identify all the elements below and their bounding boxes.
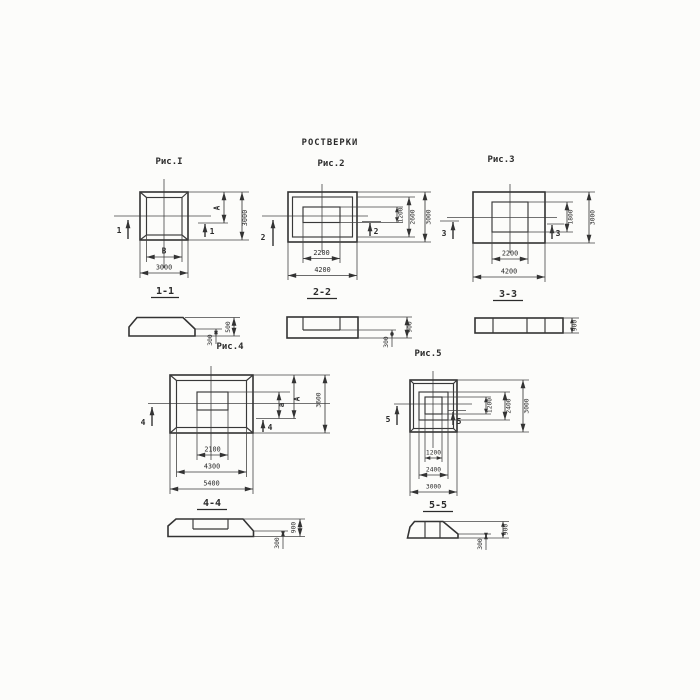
fig5-cut-label: 5 [457, 417, 462, 426]
fig1-dim-inner-height: A [213, 205, 222, 210]
section-5-5-height-total: 900 [503, 524, 510, 536]
fig4-recess-contour [197, 392, 228, 410]
fig2-cut-mark-left: 2 [261, 220, 273, 246]
section-2-2-title: 2-2 [313, 287, 331, 298]
fig3: Рис.3 3 3 1800 3000 2200 420 [440, 155, 597, 282]
fig4-dim-w1: 2100 [204, 446, 220, 454]
section-4-4-dimensions: 900 300 [243, 519, 305, 549]
section-5-5-height-edge: 300 [477, 538, 484, 550]
fig5-outer-contour [410, 380, 457, 432]
section-2-2-view: 2-2 300 900 [287, 287, 414, 348]
fig5-centerlines [394, 371, 472, 448]
fig2: Рис.2 2 2 1200 2600 3000 2200 [261, 159, 433, 280]
fig5-dim-h3: 3000 [524, 398, 531, 413]
fig2-dim-h3: 3000 [426, 209, 433, 224]
fig4-dim-w3: 5400 [203, 480, 219, 488]
fig5-dim-w3: 3000 [426, 484, 441, 491]
fig4-cut-mark-left: 4 [141, 407, 152, 427]
fig3-cut-mark-left: 3 [440, 221, 459, 239]
section-4-4-view: 4-4 900 300 [168, 498, 305, 549]
fig4-inner-contour [177, 381, 247, 428]
section-3-3-height-total: 900 [572, 320, 579, 332]
scanned-drawing-page: РОСТВЕРКИ Рис.I 1 1 A 3000 [0, 0, 700, 700]
section-2-2-profile [287, 317, 358, 338]
section-1-1-profile [129, 318, 195, 337]
section-4-4-height-total: 900 [291, 522, 298, 534]
fig1-cut-label: 1 [210, 227, 215, 236]
page-title: РОСТВЕРКИ [302, 138, 359, 148]
section-4-4-profile [168, 519, 254, 537]
fig5-cut-label: 5 [386, 415, 391, 424]
fig4-dim-h1: a [277, 402, 286, 407]
fig5-recess-contour [425, 397, 442, 414]
drawing-canvas: РОСТВЕРКИ Рис.I 1 1 A 3000 [0, 0, 700, 700]
fig4-corner-bevels [170, 375, 253, 433]
fig2-dim-h2: 2600 [410, 209, 417, 224]
fig3-dim-outer-width: 4200 [501, 268, 517, 276]
fig5-dim-w2: 2400 [426, 467, 441, 474]
section-2-2-height-edge: 300 [383, 336, 390, 348]
section-3-3-dimensions: 900 [563, 318, 579, 333]
fig4-dimensions: a A 3600 2100 4300 5400 [170, 375, 330, 494]
section-1-1-height-total: 500 [225, 321, 232, 333]
fig4-dim-h2: A [293, 396, 302, 401]
fig4-dim-w2: 4300 [204, 463, 220, 471]
fig1-dim-inner-width: B [162, 247, 167, 256]
fig2-dimensions: 1200 2600 3000 2200 4200 [288, 192, 433, 280]
fig2-cut-label: 2 [261, 233, 266, 242]
section-5-5-dimensions: 900 300 [443, 522, 510, 551]
section-3-3-view: 3-3 900 [475, 289, 579, 333]
fig5-cut-mark-left: 5 [386, 406, 397, 425]
section-4-4-title: 4-4 [203, 498, 221, 509]
fig4-outer-contour [170, 375, 253, 433]
section-5-5-joints [425, 522, 440, 539]
fig2-inner-contour [293, 197, 353, 237]
fig2-dim-h1: 1200 [398, 207, 405, 222]
fig2-cut-label: 2 [374, 227, 379, 236]
fig1-dim-outer-width: 3000 [156, 264, 172, 272]
fig1-dim-outer-height: 3000 [241, 210, 249, 226]
fig2-caption: Рис.2 [317, 159, 344, 169]
section-1-1-title: 1-1 [156, 286, 174, 297]
fig5-corner-bevels [410, 380, 457, 432]
section-5-5-title: 5-5 [429, 500, 447, 511]
fig3-dim-inner-width: 2200 [502, 250, 518, 258]
fig3-dim-inner-height: 1800 [568, 209, 575, 224]
fig1-cut-label: 1 [117, 226, 122, 235]
section-4-4-recess [193, 519, 228, 529]
fig3-caption: Рис.3 [487, 155, 514, 165]
fig4: Рис.4 4 4 a A 3600 [141, 342, 330, 494]
section-1-1-height-edge: 300 [207, 334, 214, 346]
fig4-cut-mark-right: 4 [256, 419, 296, 433]
fig1-caption: Рис.I [155, 157, 182, 167]
section-3-3-profile [475, 318, 563, 333]
fig3-cut-label: 3 [442, 229, 447, 238]
fig5-caption: Рис.5 [414, 349, 441, 359]
fig5: Рис.5 5 5 1200 2400 3 [386, 349, 531, 496]
fig1-cut-mark-right: 1 [198, 223, 228, 237]
fig2-dim-outer-width: 4200 [314, 266, 330, 274]
fig4-cut-label: 4 [268, 423, 273, 432]
fig3-dim-outer-height: 3000 [590, 210, 597, 225]
section-1-1-view: 1-1 500 300 [129, 286, 240, 346]
fig3-cut-mark-right: 3 [547, 224, 564, 239]
fig5-dim-h1: 1200 [487, 398, 494, 413]
section-5-5-view: 5-5 900 300 [408, 500, 510, 550]
fig1-cut-mark-left: 1 [117, 220, 128, 239]
section-3-3-title: 3-3 [499, 289, 517, 300]
section-2-2-height-total: 900 [407, 321, 414, 333]
fig4-caption: Рис.4 [216, 342, 244, 352]
fig4-dim-h3: 3600 [316, 392, 323, 407]
section-2-2-recess [303, 317, 340, 330]
fig5-dim-h2: 2400 [506, 398, 513, 413]
fig5-dim-w1: 1200 [426, 450, 441, 457]
fig3-cut-label: 3 [556, 229, 561, 238]
fig2-recess-contour [303, 207, 340, 223]
fig5-middle-contour [419, 392, 448, 420]
section-4-4-height-edge: 300 [274, 537, 281, 549]
section-3-3-joints [493, 318, 545, 333]
section-2-2-dimensions: 300 900 [340, 317, 414, 348]
fig1: Рис.I 1 1 A 3000 B [114, 157, 249, 278]
section-5-5-profile [408, 522, 459, 539]
fig2-cut-mark-right: 2 [362, 222, 381, 237]
fig2-outer-contour [288, 192, 357, 242]
fig4-cut-label: 4 [141, 418, 146, 427]
fig2-dim-inner-width: 2200 [313, 249, 329, 257]
